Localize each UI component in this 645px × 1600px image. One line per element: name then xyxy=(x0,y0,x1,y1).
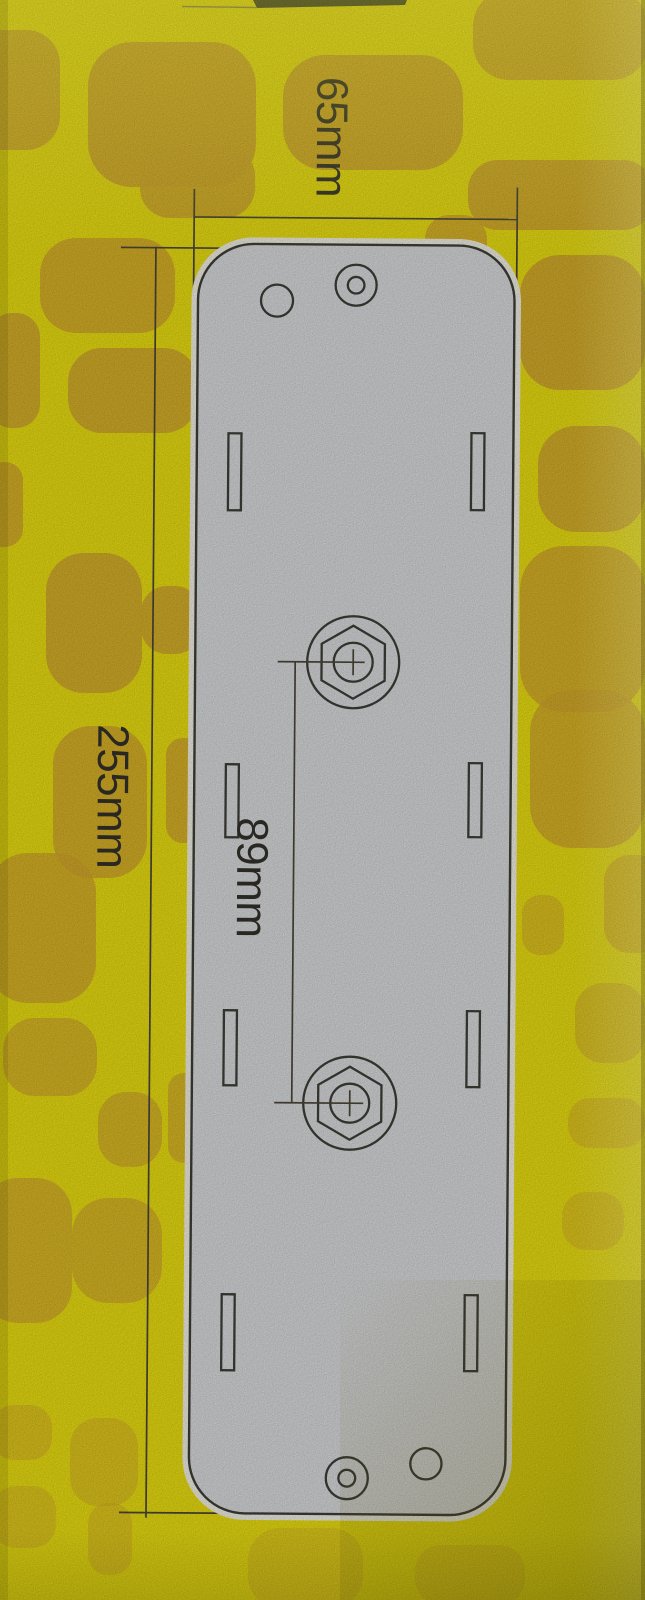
packaging-photo: 65mm 255mm 89mm xyxy=(0,0,645,1600)
dimension-diagram: 65mm 255mm 89mm xyxy=(0,0,645,1600)
grain-overlay xyxy=(0,0,645,1600)
